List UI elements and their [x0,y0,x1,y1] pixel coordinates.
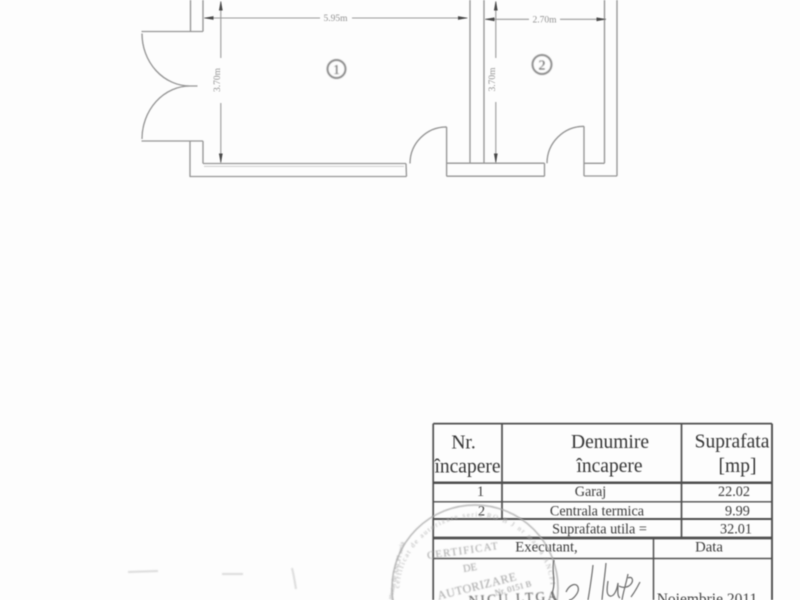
svg-text:3.70m: 3.70m [213,67,223,92]
svg-text:32.01: 32.01 [720,522,752,538]
svg-text:Garaj: Garaj [575,484,607,500]
svg-text:Data: Data [695,540,723,556]
svg-text:2.70m: 2.70m [532,16,557,26]
svg-text:5.95m: 5.95m [323,14,348,24]
svg-text:1: 1 [477,484,484,500]
svg-text:încapere: încapere [433,457,500,478]
svg-text:încapere: încapere [575,456,642,477]
svg-text:Noiembrie 2011: Noiembrie 2011 [657,591,758,600]
svg-text:Suprafata utila =: Suprafata utila = [552,522,647,538]
svg-text:Centrala termica: Centrala termica [550,504,645,520]
svg-text:22.02: 22.02 [718,484,750,500]
svg-text:Denumire: Denumire [571,432,649,453]
svg-text:9.99: 9.99 [725,504,750,520]
svg-text:2: 2 [539,59,546,74]
svg-text:1: 1 [333,63,340,78]
svg-text:Suprafata: Suprafata [695,432,770,453]
svg-text:3.70m: 3.70m [488,67,498,92]
svg-text:[mp]: [mp] [719,456,757,477]
svg-text:DE: DE [462,562,478,575]
svg-text:Nr.: Nr. [451,433,475,454]
